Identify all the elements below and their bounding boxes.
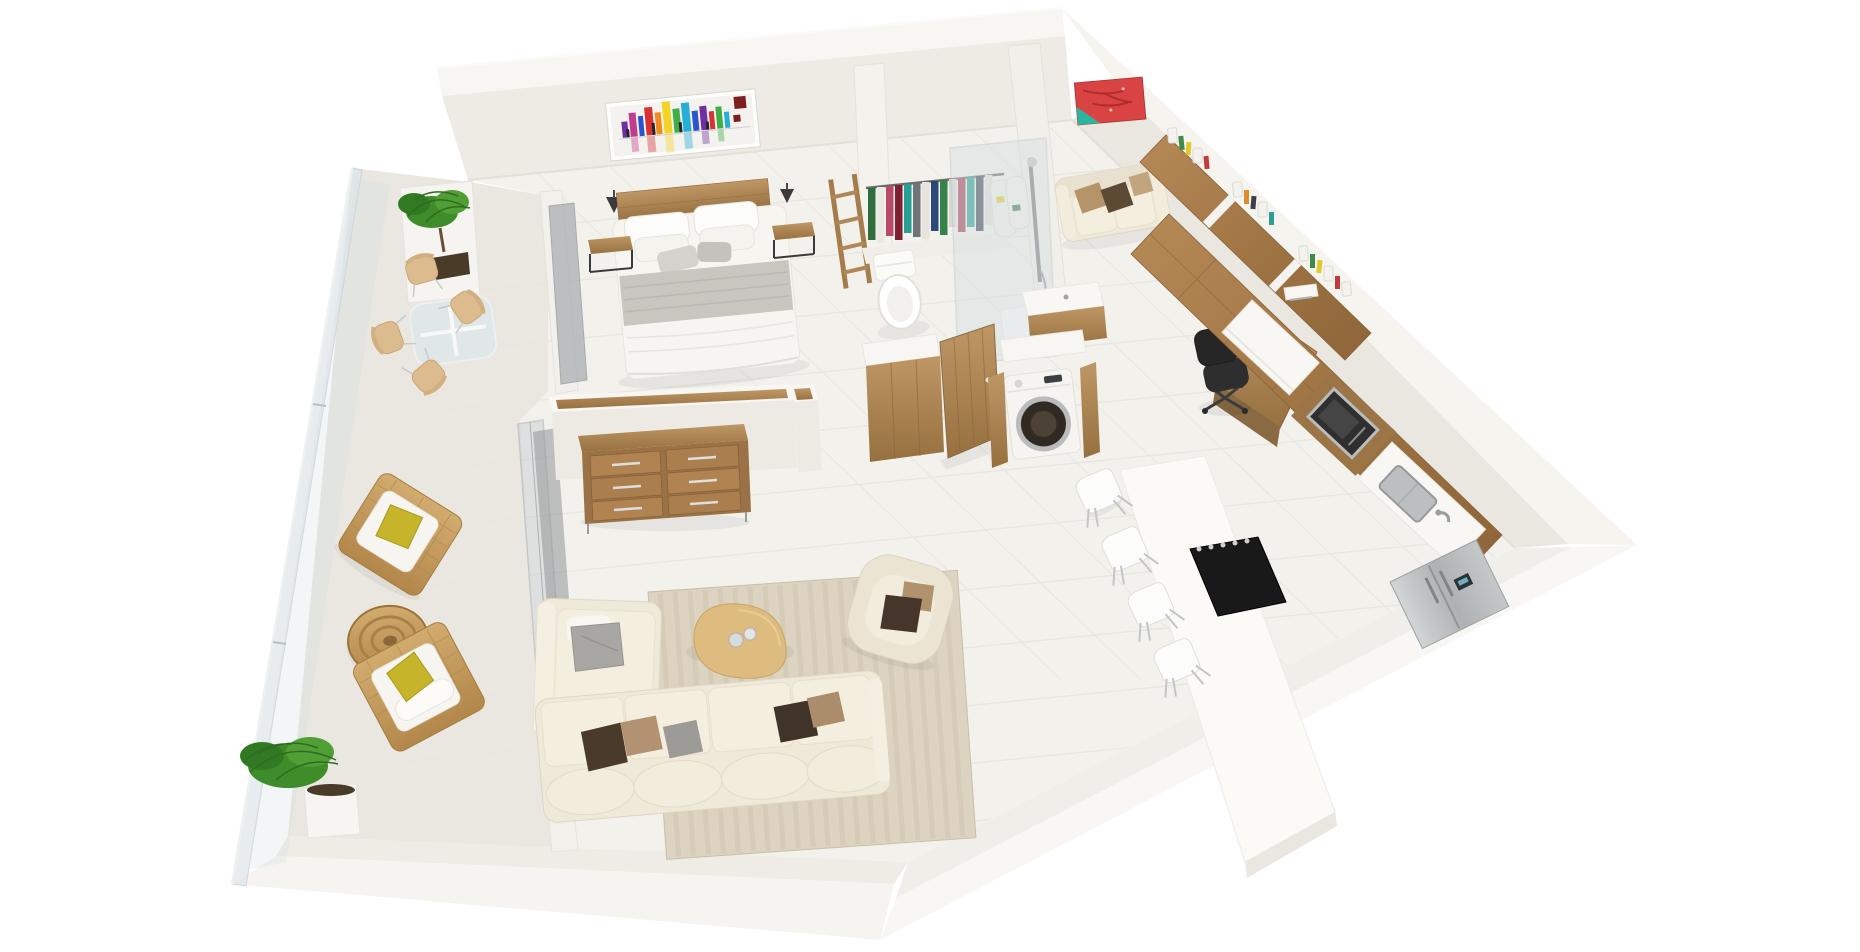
floorplan-render-stage <box>0 0 1860 952</box>
cup <box>729 633 743 647</box>
cup <box>744 628 756 640</box>
red-abstract-painting <box>1074 77 1145 125</box>
wood-dresser <box>578 424 751 534</box>
pillow-gray <box>569 621 625 673</box>
vanity-wood-front <box>862 334 944 462</box>
apartment-3d-floorplan <box>0 0 1860 952</box>
return-wall <box>794 400 822 473</box>
double-bed <box>600 176 810 394</box>
